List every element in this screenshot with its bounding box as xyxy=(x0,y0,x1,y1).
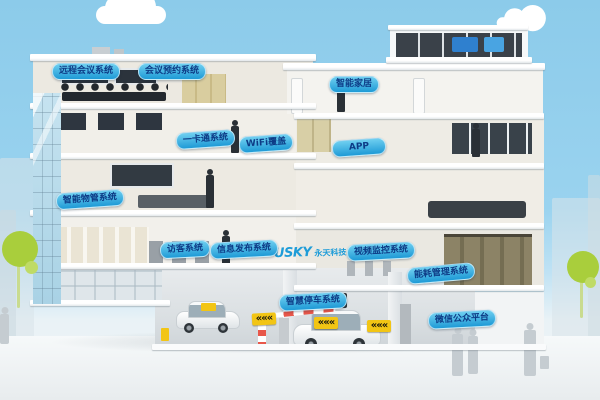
reception-counter xyxy=(138,195,208,208)
tree-icon xyxy=(585,277,596,288)
label-meeting-booking-system: 会议预约系统 xyxy=(138,63,206,80)
luggage-icon xyxy=(540,356,549,369)
usky-logo-text: USKY xyxy=(274,245,312,261)
car-wheel xyxy=(218,323,228,333)
person-silhouette xyxy=(452,334,463,376)
floor-slab xyxy=(294,285,544,291)
penthouse-roof xyxy=(388,25,528,30)
ticket-kiosk xyxy=(400,304,411,346)
washroom-stalls xyxy=(55,227,149,264)
conference-attendees xyxy=(60,83,168,92)
person-silhouette xyxy=(468,336,478,374)
floor-slab xyxy=(30,263,316,269)
elevator-doors xyxy=(297,119,331,152)
air-conditioner-unit xyxy=(413,78,425,114)
floor-slab xyxy=(30,210,316,216)
label-wechat-public-platform: 微信公众平台 xyxy=(428,309,497,330)
usky-logo: USKY 永天科技 xyxy=(274,244,347,262)
yellow-sign xyxy=(201,303,216,311)
fitness-equipment xyxy=(452,37,478,52)
label-information-publishing-system: 信息发布系统 xyxy=(210,239,279,260)
label-smart-home: 智能家居 xyxy=(329,76,379,93)
tree-icon xyxy=(25,261,38,274)
dark-window-band xyxy=(452,123,532,154)
floor-slab xyxy=(294,223,544,229)
person-silhouette xyxy=(0,314,9,344)
yellow-sign xyxy=(161,328,169,341)
car-wheel xyxy=(184,323,194,333)
tree-trunk xyxy=(17,262,20,308)
person-silhouette xyxy=(524,330,536,376)
roof-slab-right xyxy=(283,63,545,70)
fitness-equipment xyxy=(484,37,504,52)
usky-logo-suffix: 永天科技 xyxy=(314,247,346,259)
wall-screen xyxy=(110,163,174,188)
floor-slab xyxy=(30,153,316,159)
label-visitor-system: 访客系统 xyxy=(160,240,211,260)
penthouse-base-slab xyxy=(386,57,532,63)
barrier-control-box xyxy=(279,318,289,344)
label-remote-conference-system: 远程会议系统 xyxy=(52,63,120,80)
wall-screen-row xyxy=(60,113,164,130)
direction-arrow-icon: ««« xyxy=(252,312,277,325)
roof-slab-left xyxy=(30,54,316,61)
floor-slab xyxy=(30,103,316,109)
conference-table xyxy=(62,92,166,101)
person-silhouette xyxy=(206,175,214,208)
direction-arrow-icon: ««« xyxy=(314,317,338,329)
cloud-icon xyxy=(96,6,166,24)
floor-slab xyxy=(294,113,544,119)
tree-trunk xyxy=(580,278,583,318)
person-silhouette xyxy=(472,129,480,157)
front-curb xyxy=(152,344,546,350)
smart-building-scene: ««« ««« ««« 远程会议系统 会议预约系统 智能家居 一卡通系统 WiF… xyxy=(0,0,600,400)
label-video-surveillance-system: 视频监控系统 xyxy=(347,241,416,262)
office-sofa-row xyxy=(428,201,526,218)
direction-arrow-icon: ««« xyxy=(367,320,391,332)
label-smart-parking-system: 智慧停车系统 xyxy=(279,291,348,312)
floor-slab xyxy=(294,163,544,169)
